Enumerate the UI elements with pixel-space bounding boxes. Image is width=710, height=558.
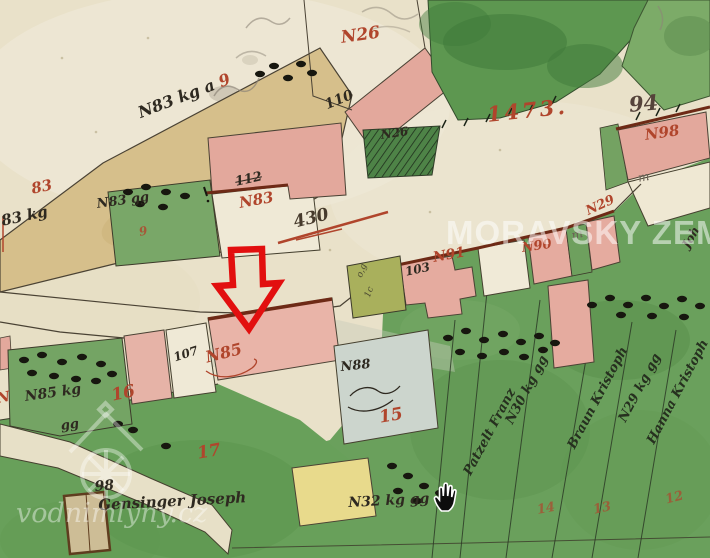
label-n83gg: N83 gg: [96, 191, 150, 211]
label-n26: N26: [340, 25, 381, 47]
label-1473: 1473.: [486, 96, 569, 125]
label-n83-strip-text: N83 kg a: [135, 75, 217, 122]
label-17: 17: [196, 442, 222, 463]
label-112: 112: [234, 170, 263, 188]
label-94: 94: [628, 91, 659, 114]
watermark-archive: MORAVSKY ZEMS: [446, 214, 710, 252]
label-tiny1: o,g: [356, 263, 369, 279]
annotation-arrow-icon: [198, 238, 298, 340]
label-n88: N88: [340, 358, 371, 374]
label-14: 14: [536, 501, 556, 517]
label-83kg: 83 kg: [0, 204, 49, 228]
label-n98: N98: [644, 123, 680, 143]
label-103: 103: [404, 261, 431, 278]
label-n26-hatched: N26: [380, 125, 409, 141]
map-labels-layer: N26 N83 kg a 9 110 83 83 kg N83 gg 9 112…: [0, 0, 710, 558]
strip-label-braun: Braun Kristoph: [566, 345, 631, 451]
label-13: 13: [592, 500, 612, 516]
label-n85kg: N85 kg: [24, 382, 82, 404]
watermark-site: vodnimlyny.cz: [16, 498, 207, 529]
label-98: 98: [94, 478, 115, 494]
label-small9: 9: [138, 225, 148, 238]
label-m1: m: [637, 170, 650, 184]
label-edge-n: N: [0, 390, 11, 406]
label-n83-strip-class: 9: [216, 69, 233, 91]
label-107: 107: [172, 344, 200, 363]
label-110: 110: [323, 88, 355, 112]
hand-cursor-icon[interactable]: [431, 481, 459, 513]
label-n83-strip: N83 kg a 9: [136, 71, 233, 121]
label-16: 16: [110, 383, 137, 405]
map-canvas[interactable]: N26 N83 kg a 9 110 83 83 kg N83 gg 9 112…: [0, 0, 710, 558]
label-gg: gg: [60, 417, 80, 432]
label-83-red: 83: [30, 178, 54, 197]
label-tiny2: 1c: [364, 286, 376, 299]
label-430-crossed: 430: [292, 206, 331, 231]
label-n83-red: N83: [238, 190, 275, 211]
label-n85-red: N85: [204, 341, 244, 365]
strip-label-patzelt: Patzelt Franz: [462, 387, 519, 478]
label-15: 15: [378, 406, 404, 427]
label-n32: N32 kg gg: [348, 492, 430, 510]
label-12: 12: [664, 489, 685, 506]
